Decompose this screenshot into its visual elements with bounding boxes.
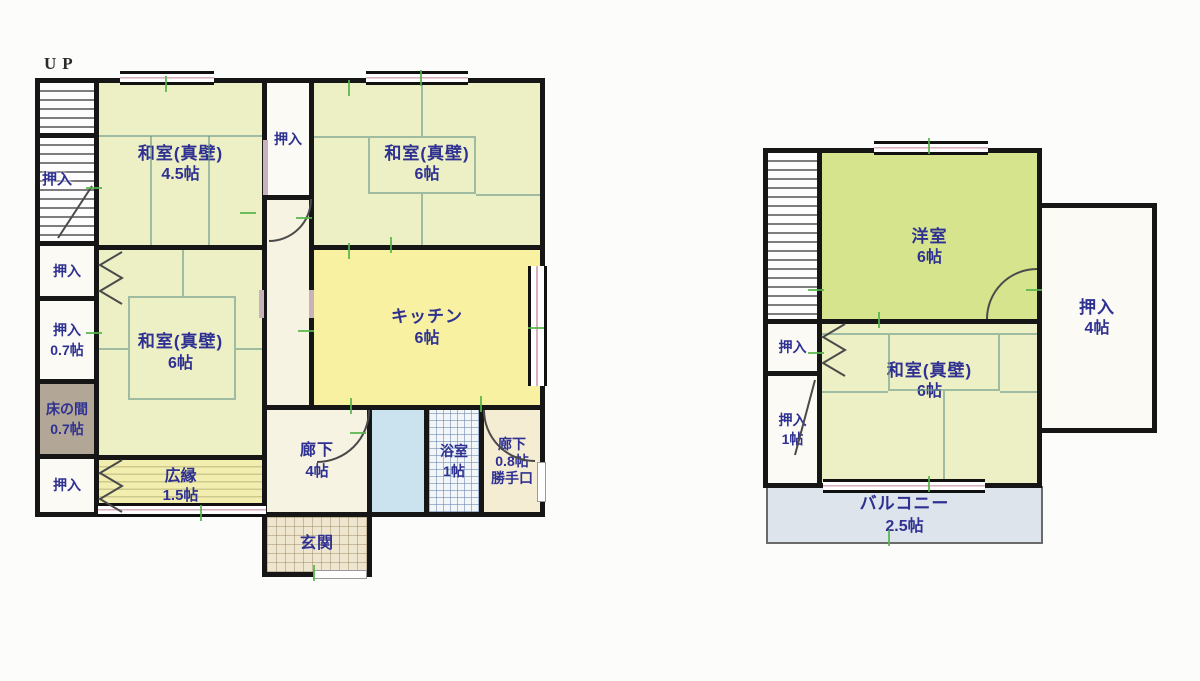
measure-mark [298, 330, 314, 332]
measure-mark [165, 76, 167, 92]
tatami-line [99, 135, 262, 137]
window [120, 71, 214, 85]
tatami-line [150, 136, 152, 245]
room-size: 4.5帖 [161, 166, 199, 184]
measure-mark [200, 505, 202, 521]
measure-mark [348, 80, 350, 96]
backdoor-label: 勝手口 [491, 470, 533, 486]
room-label: 押入 [1079, 298, 1115, 318]
room-washitsu-45: 和室(真壁) 4.5帖 [94, 78, 267, 250]
room-size: 1帖 [782, 431, 804, 447]
measure-mark [420, 70, 422, 86]
room-label: 浴室 [440, 443, 468, 459]
room-oshiire-2f-small: 押入 [763, 319, 822, 376]
room-label: 洋室 [912, 227, 948, 247]
window-balcony-door [823, 479, 985, 493]
room-kitchen: キッチン 6帖 [309, 245, 545, 410]
room-washroom [367, 405, 429, 517]
room-label: 広縁 [164, 468, 196, 486]
tatami-line [943, 391, 945, 483]
room-youshitsu: 洋室 6帖 [817, 148, 1042, 324]
room-label: 押入 [53, 322, 81, 338]
measure-mark [808, 289, 824, 291]
tatami-box [888, 333, 1000, 391]
room-tokonoma: 床の間 0.7帖 [35, 379, 99, 459]
room-oshiire-4: 押入 4帖 [1037, 203, 1157, 433]
tatami-line [236, 348, 262, 350]
window [366, 71, 468, 85]
sliding-door-marker [309, 290, 314, 318]
room-size: 0.8帖 [495, 453, 528, 469]
room-label: 玄関 [300, 535, 334, 553]
measure-mark [350, 432, 366, 434]
sliding-door-marker [263, 140, 268, 195]
room-size: 2.5帖 [885, 517, 923, 536]
room-oshiire-top-center: 押入 [262, 78, 314, 200]
room-size: 0.7帖 [50, 421, 83, 437]
measure-mark [878, 312, 880, 328]
room-size: 6帖 [917, 249, 942, 267]
tatami-box [128, 296, 236, 400]
window [528, 266, 547, 386]
room-label: 押入 [53, 263, 81, 279]
stairs-up-label: UP [44, 54, 79, 74]
measure-mark [390, 237, 392, 253]
room-size: 4帖 [1085, 320, 1110, 338]
measure-mark [348, 243, 350, 259]
measure-mark [86, 187, 102, 189]
tatami-line [421, 194, 423, 245]
window [874, 141, 988, 155]
floorplan-canvas: UP 押入 押入 押入 0.7帖 床の間 0.7帖 押入 和室(真壁) 4.5帖… [0, 0, 1200, 681]
room-balcony: バルコニー 2.5帖 [766, 486, 1043, 544]
tatami-line [182, 250, 184, 296]
room-label: 押入 [274, 131, 302, 147]
tatami-line [421, 83, 423, 136]
corridor-vertical [262, 195, 314, 410]
room-label: 廊下 [498, 436, 526, 452]
measure-mark [1026, 289, 1042, 291]
tatami-line [822, 333, 888, 335]
room-label: 廊下 [300, 442, 334, 460]
room-genkan: 玄関 [262, 512, 372, 577]
stair-landing-divider [38, 133, 96, 138]
window-hiroen [98, 503, 266, 517]
tatami-line [1000, 391, 1037, 393]
room-oshiire-left-1: 押入 [35, 241, 99, 301]
room-label: 押入 [53, 477, 81, 493]
room-label: 押入 [779, 339, 807, 355]
measure-mark [86, 332, 102, 334]
measure-mark [296, 217, 312, 219]
room-rouka: 廊下 4帖 [262, 405, 372, 517]
room-label: キッチン [391, 307, 463, 327]
measure-mark [240, 212, 256, 214]
tatami-line [99, 348, 128, 350]
tatami-line [476, 194, 540, 196]
staircase-2f [763, 148, 822, 324]
room-size: 1.5帖 [163, 487, 199, 504]
backdoor-opening [537, 462, 546, 502]
room-size: 6帖 [415, 330, 440, 348]
room-bathroom: 浴室 1帖 [424, 405, 484, 517]
room-katteguchi: 廊下 0.8帖 勝手口 [479, 405, 545, 517]
staircase-1f [35, 78, 99, 246]
tatami-line [1000, 333, 1037, 335]
room-oshiire-2f-1: 押入 1帖 [763, 371, 822, 488]
genkan-door [313, 570, 367, 579]
tatami-line [208, 136, 210, 245]
measure-mark [350, 398, 352, 414]
room-label: 床の間 [46, 401, 88, 417]
room-size: 1帖 [443, 463, 465, 479]
sliding-door-marker [259, 290, 264, 318]
room-size: 4帖 [305, 463, 328, 480]
measure-mark [928, 138, 930, 154]
tatami-box [368, 136, 476, 194]
measure-mark [808, 352, 824, 354]
measure-mark [928, 476, 930, 492]
room-oshiire-left-2: 押入 0.7帖 [35, 296, 99, 384]
room-oshiire-under-stairs-label: 押入 [42, 168, 72, 189]
measure-mark [480, 396, 482, 412]
room-size: 0.7帖 [50, 342, 83, 358]
tatami-line [314, 136, 368, 138]
measure-mark [528, 327, 544, 329]
room-label: バルコニー [860, 494, 950, 514]
tatami-line [822, 391, 888, 393]
measure-mark [313, 565, 315, 581]
room-label: 押入 [779, 412, 807, 428]
room-oshiire-left-3: 押入 [35, 454, 99, 517]
measure-mark [888, 530, 890, 546]
